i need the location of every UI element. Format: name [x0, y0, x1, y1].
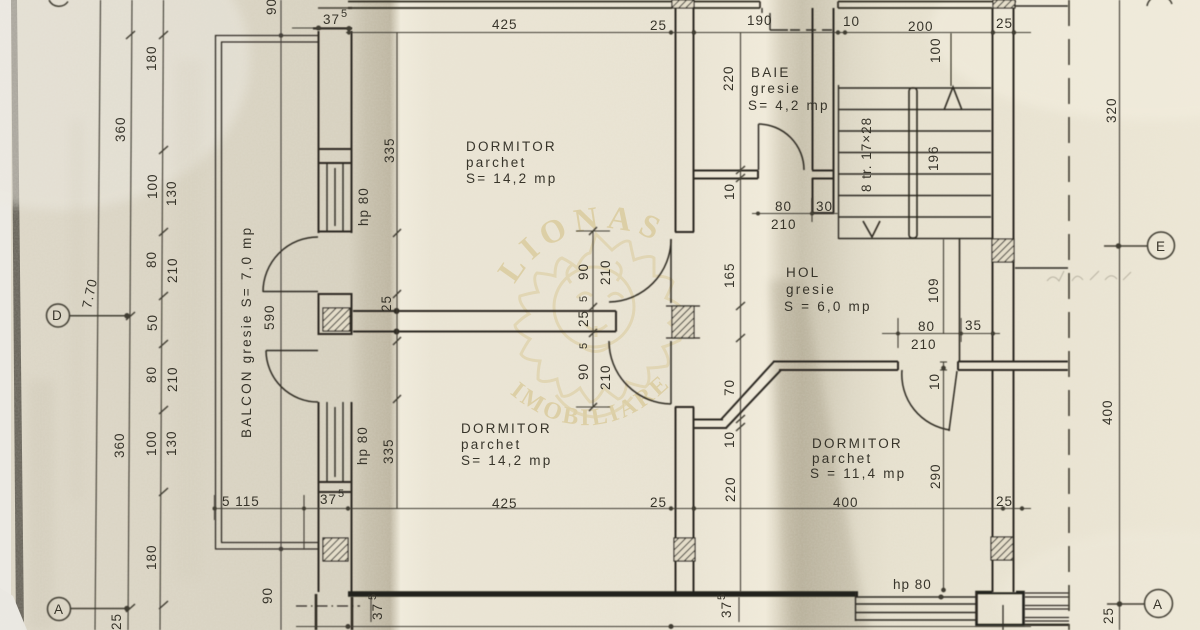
svg-text:425: 425	[492, 496, 518, 511]
svg-text:210: 210	[598, 364, 613, 390]
svg-text:210: 210	[771, 217, 797, 232]
svg-text:37: 37	[323, 12, 340, 27]
svg-text:90: 90	[576, 263, 591, 280]
svg-text:190: 190	[747, 13, 773, 28]
svg-text:200: 200	[908, 19, 934, 34]
svg-text:35: 35	[965, 318, 982, 333]
svg-text:70: 70	[722, 379, 737, 396]
svg-text:80: 80	[144, 366, 159, 383]
svg-text:hp 80: hp 80	[356, 187, 371, 226]
svg-text:5: 5	[578, 295, 590, 302]
svg-text:180: 180	[144, 45, 159, 71]
svg-text:DORMITOR: DORMITOR	[812, 436, 903, 451]
svg-text:25: 25	[109, 613, 124, 630]
svg-text:hp 80: hp 80	[893, 577, 932, 592]
svg-text:400: 400	[1100, 399, 1115, 425]
svg-text:90: 90	[264, 0, 279, 15]
svg-text:25: 25	[1101, 607, 1116, 624]
svg-text:165: 165	[722, 262, 737, 288]
svg-text:5: 5	[367, 593, 379, 600]
svg-text:parchet: parchet	[812, 451, 872, 466]
svg-text:320: 320	[1104, 97, 1119, 123]
svg-text:100: 100	[928, 37, 943, 63]
svg-text:196: 196	[926, 145, 941, 171]
svg-text:210: 210	[165, 366, 180, 392]
svg-text:220: 220	[723, 476, 738, 502]
svg-text:parchet: parchet	[466, 155, 526, 170]
svg-text:335: 335	[382, 137, 397, 163]
svg-text:90: 90	[576, 363, 591, 380]
svg-text:E: E	[1156, 239, 1166, 254]
svg-text:25: 25	[650, 18, 667, 33]
svg-text:37: 37	[370, 603, 385, 620]
svg-text:10: 10	[722, 431, 737, 448]
svg-text:109: 109	[926, 277, 941, 303]
svg-text:S= 14,2 mp: S= 14,2 mp	[461, 453, 552, 468]
svg-text:210: 210	[598, 259, 613, 285]
svg-text:25: 25	[996, 16, 1013, 31]
svg-text:590: 590	[262, 304, 277, 330]
svg-text:400: 400	[833, 495, 859, 510]
svg-text:130: 130	[164, 180, 179, 206]
svg-text:180: 180	[144, 544, 159, 570]
svg-text:80: 80	[775, 199, 792, 214]
svg-text:100: 100	[144, 430, 159, 456]
svg-text:10: 10	[722, 183, 737, 200]
svg-text:gresie: gresie	[786, 282, 836, 297]
svg-text:5: 5	[338, 488, 345, 500]
svg-text:S= 4,2 mp: S= 4,2 mp	[748, 98, 830, 113]
svg-text:335: 335	[381, 438, 396, 464]
svg-text:25: 25	[576, 310, 591, 327]
svg-text:5: 5	[578, 342, 590, 349]
svg-text:80: 80	[918, 319, 935, 334]
svg-text:S = 6,0 mp: S = 6,0 mp	[784, 299, 872, 314]
svg-text:BAIE: BAIE	[751, 65, 791, 80]
svg-text:30: 30	[816, 199, 833, 214]
svg-text:5 115: 5 115	[222, 494, 260, 509]
svg-text:DORMITOR: DORMITOR	[466, 139, 557, 154]
svg-text:130: 130	[164, 430, 179, 456]
svg-text:8 tr. 17×28: 8 tr. 17×28	[859, 117, 874, 192]
svg-text:25: 25	[650, 495, 667, 510]
svg-text:50: 50	[145, 314, 160, 331]
svg-text:37: 37	[719, 601, 734, 618]
svg-text:S = 11,4 mp: S = 11,4 mp	[810, 466, 906, 481]
svg-text:A: A	[54, 602, 64, 617]
svg-text:10: 10	[927, 373, 942, 390]
svg-text:290: 290	[928, 463, 943, 489]
svg-text:hp 80: hp 80	[355, 426, 370, 465]
svg-text:425: 425	[492, 17, 518, 32]
svg-text:360: 360	[112, 432, 127, 458]
svg-text:5: 5	[716, 593, 728, 600]
svg-text:parchet: parchet	[461, 437, 521, 452]
svg-text:25: 25	[379, 295, 394, 312]
svg-text:360: 360	[113, 116, 128, 142]
svg-text:gresie: gresie	[751, 81, 801, 96]
svg-text:DORMITOR: DORMITOR	[461, 421, 552, 436]
svg-text:210: 210	[911, 337, 937, 352]
svg-text:210: 210	[165, 257, 180, 283]
svg-text:10: 10	[843, 14, 860, 29]
svg-text:100: 100	[145, 173, 160, 199]
svg-text:D: D	[52, 308, 63, 323]
svg-text:25: 25	[996, 494, 1013, 509]
svg-text:5: 5	[341, 8, 348, 20]
svg-text:220: 220	[721, 65, 736, 91]
svg-text:A: A	[1153, 597, 1163, 612]
svg-text:37: 37	[320, 492, 337, 507]
svg-text:HOL: HOL	[786, 265, 820, 280]
svg-text:90: 90	[260, 587, 275, 604]
svg-text:S= 14,2 mp: S= 14,2 mp	[466, 171, 557, 186]
svg-text:80: 80	[144, 251, 159, 268]
svg-text:BALCON gresie S= 7,0 mp: BALCON gresie S= 7,0 mp	[239, 226, 254, 438]
